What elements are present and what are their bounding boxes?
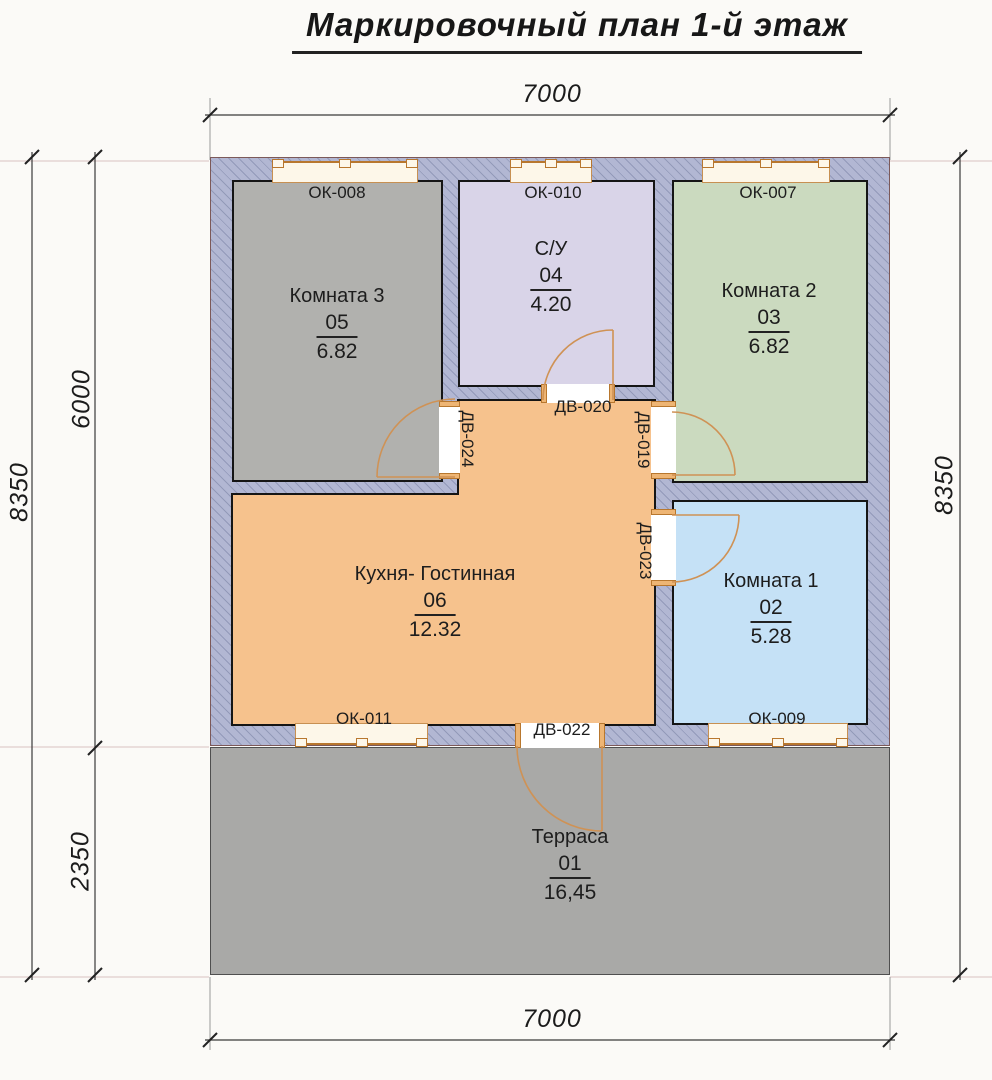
dim-value-right-total: 8350 <box>931 455 960 515</box>
dim-value-left-main: 6000 <box>68 369 97 429</box>
floor-plan-page: { "title": "Маркировочный план 1-й этаж"… <box>0 0 992 1080</box>
dim-value-bottom: 7000 <box>522 1005 582 1034</box>
dimension-line-group <box>32 115 960 1040</box>
dim-value-left-total: 8350 <box>6 462 35 522</box>
dim-value-left-terrace: 2350 <box>67 831 96 891</box>
dimension-lines <box>0 0 992 1080</box>
dimension-tick-group <box>25 108 967 1047</box>
page-title: Маркировочный план 1-й этаж <box>292 6 862 54</box>
dim-value-top: 7000 <box>522 80 582 109</box>
